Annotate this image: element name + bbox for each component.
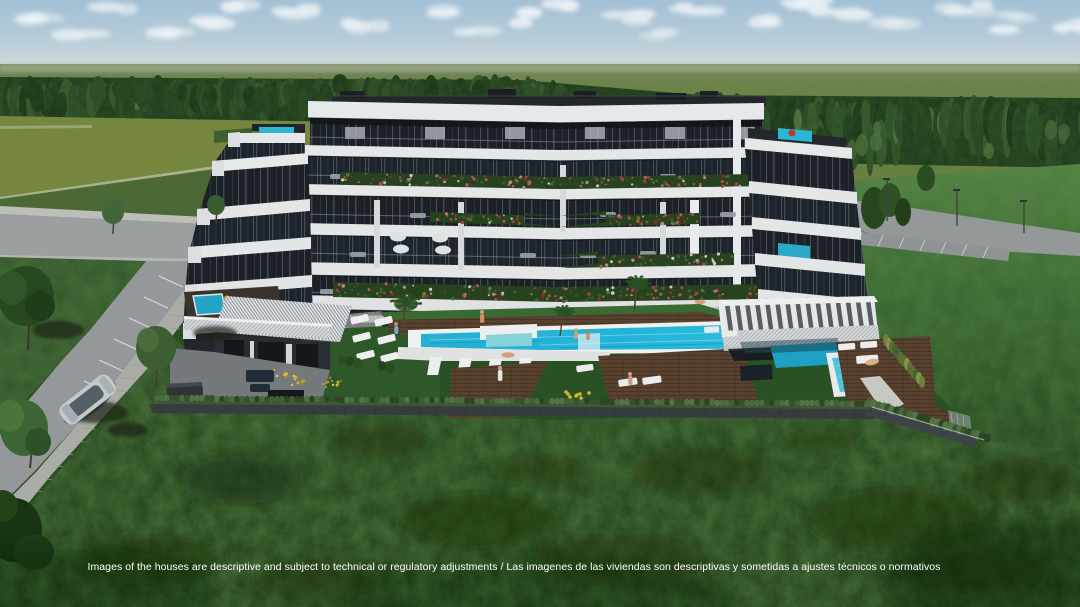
svg-text:Images of the houses are descr: Images of the houses are descriptive and… <box>88 561 941 573</box>
